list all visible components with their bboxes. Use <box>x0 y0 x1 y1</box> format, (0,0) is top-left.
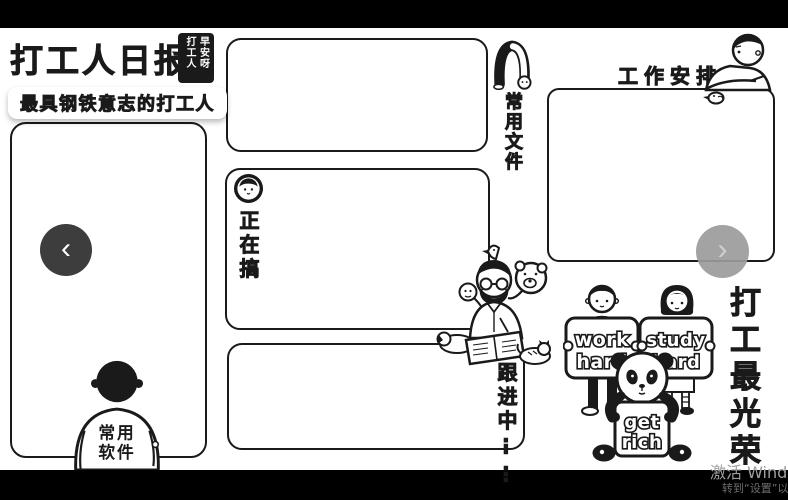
following-ellipsis: ⋮⋮ <box>494 434 518 490</box>
chevron-left-icon: ‹ <box>61 234 71 264</box>
study-sign-line1: study <box>646 330 705 351</box>
bottom-letterbox <box>0 470 788 500</box>
page-title: 打工人日报 <box>10 34 190 82</box>
doing-label: 正在搞 <box>234 210 263 282</box>
software-label-line2: 软件 <box>98 442 135 462</box>
work-sign-line1: work <box>575 329 630 351</box>
vertical-slogan: 打工最光荣 <box>720 286 765 471</box>
bowing-person-icon <box>492 36 532 90</box>
badge-left-column: 打工人 <box>184 36 196 69</box>
following-label: 跟进中⋮⋮ <box>492 362 521 490</box>
person-from-behind-icon: 常用 软件 <box>58 356 176 470</box>
next-button[interactable]: › <box>696 225 749 278</box>
leaning-person-with-bird-icon <box>692 28 780 108</box>
man-reading-newspaper-with-pets-icon <box>436 242 554 368</box>
software-label-line1: 常用 <box>98 423 135 443</box>
prev-button[interactable]: ‹ <box>40 224 92 276</box>
files-panel-box <box>226 38 488 152</box>
files-label: 常用文件 <box>499 92 525 172</box>
chevron-right-icon: › <box>718 235 728 265</box>
badge-right-column: 早安呀 <box>197 36 209 69</box>
morning-badge: 打工人 早安呀 <box>178 33 214 83</box>
activation-watermark-line2: 转到“设置”以 <box>722 480 788 496</box>
panda-holding-sign-icon: get rich <box>591 350 693 464</box>
rich-sign-line1: get <box>624 412 659 433</box>
desktop-wallpaper: 打工人日报 打工人 早安呀 最具钢铁意志的打工人 ‹ › 正在搞 跟进中⋮⋮ 常… <box>0 0 788 500</box>
subtitle-banner: 最具钢铁意志的打工人 <box>8 87 227 119</box>
rich-sign-line2: rich <box>622 432 663 453</box>
boy-face-badge-icon <box>233 173 264 204</box>
top-letterbox <box>0 0 788 28</box>
